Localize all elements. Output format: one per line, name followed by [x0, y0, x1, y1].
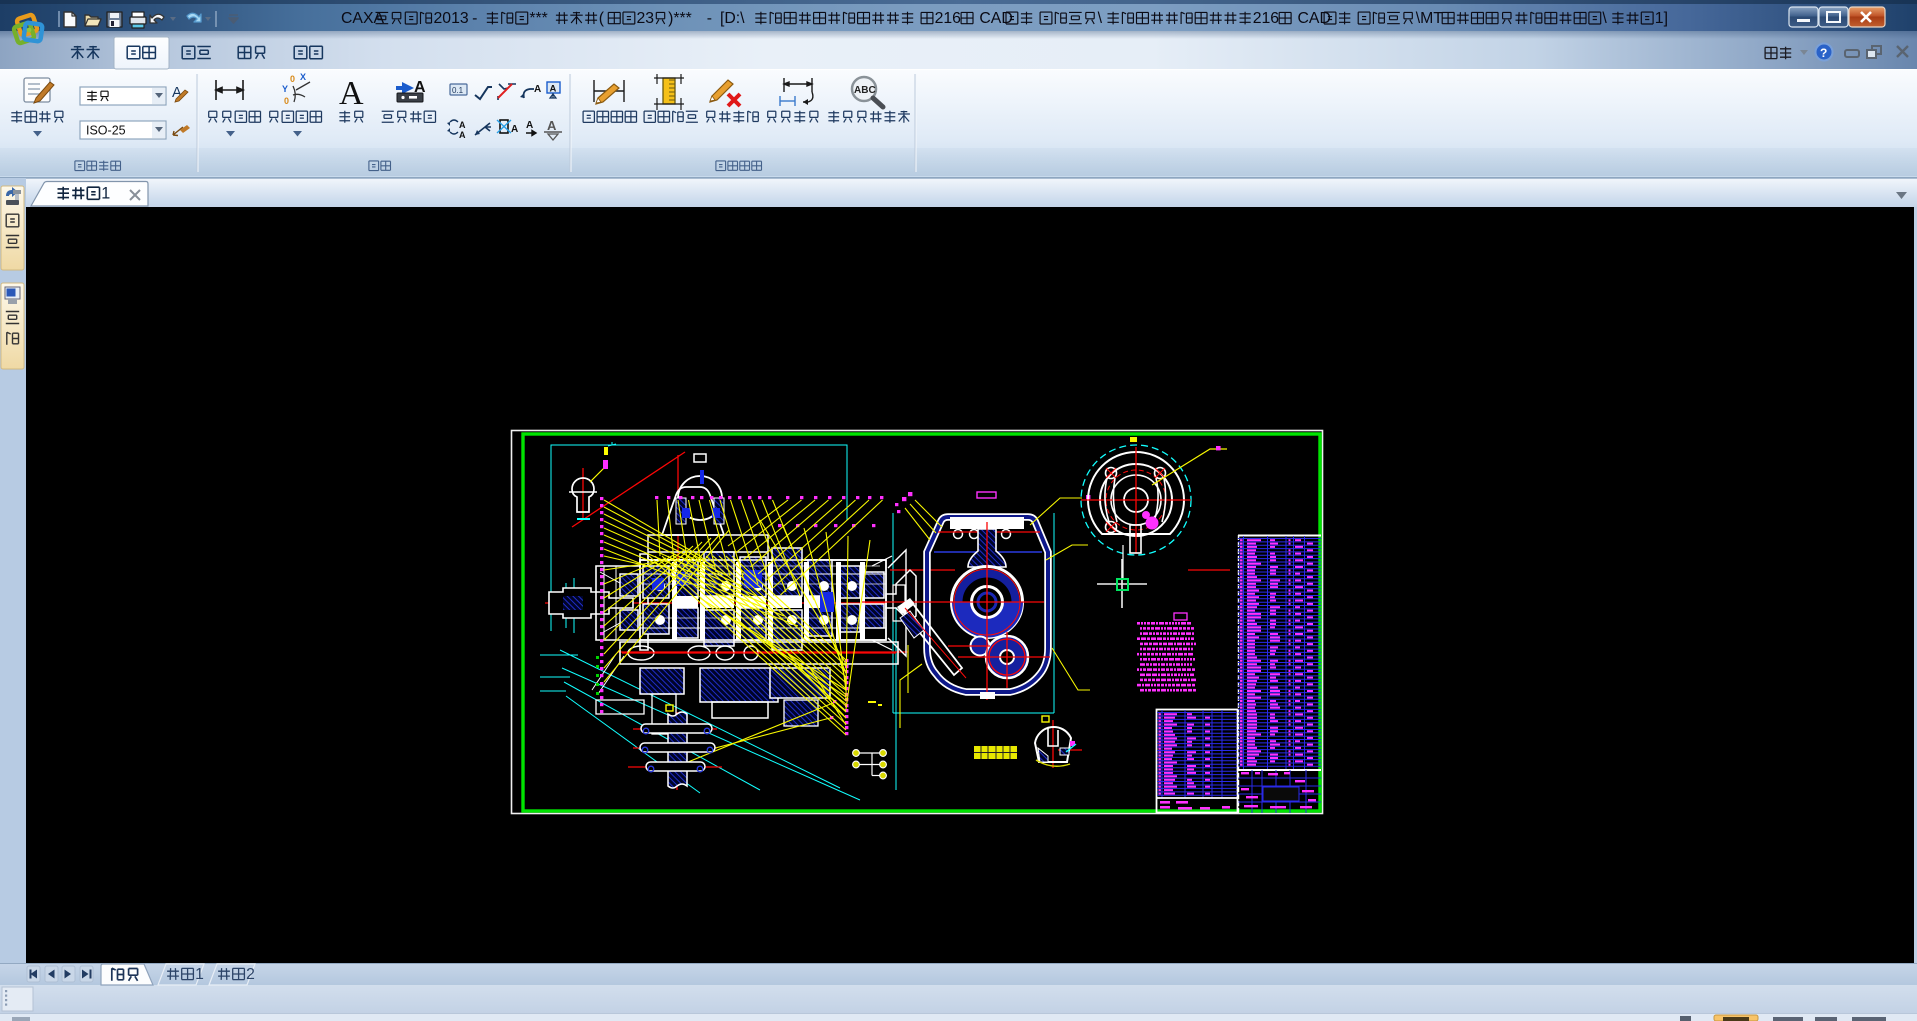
svg-text:[D:\: [D:\: [720, 10, 745, 27]
svg-text:CAD: CAD: [1298, 10, 1331, 27]
svg-text:(: (: [599, 10, 605, 27]
svg-text:216: 216: [935, 10, 962, 27]
svg-text:-: -: [707, 10, 712, 27]
svg-text:X: X: [300, 72, 306, 82]
svg-text:23: 23: [637, 10, 655, 27]
svg-text:-: -: [472, 10, 477, 27]
svg-text:2: 2: [246, 966, 255, 983]
svg-text:A: A: [550, 84, 557, 95]
svg-text:A: A: [526, 120, 533, 131]
svg-text:1]: 1]: [1655, 10, 1668, 27]
svg-text:\: \: [1602, 10, 1607, 27]
svg-text:CAXA: CAXA: [341, 10, 384, 27]
svg-text:ISO-25: ISO-25: [86, 124, 126, 138]
svg-text:2013: 2013: [434, 10, 469, 27]
svg-text:A: A: [339, 75, 364, 112]
svg-text:A: A: [534, 84, 541, 95]
svg-text:1: 1: [101, 185, 110, 203]
svg-text:\: \: [1098, 10, 1103, 27]
svg-text:0: 0: [284, 96, 289, 106]
svg-text:***: ***: [529, 10, 547, 27]
svg-text:0.1: 0.1: [452, 86, 464, 95]
svg-text:A: A: [459, 130, 466, 140]
svg-text:216: 216: [1253, 10, 1280, 27]
svg-text:ABC: ABC: [854, 85, 876, 96]
svg-text:?: ?: [1820, 46, 1827, 60]
svg-text:A: A: [511, 124, 518, 135]
svg-text:0: 0: [290, 74, 295, 84]
svg-text:1: 1: [195, 966, 204, 983]
svg-text:)***: )***: [668, 10, 692, 27]
svg-text:A: A: [547, 118, 557, 133]
svg-text:\MT: \MT: [1416, 10, 1444, 27]
svg-text:CAD: CAD: [979, 10, 1012, 27]
svg-text:A: A: [459, 120, 466, 130]
svg-text:Y: Y: [282, 84, 288, 94]
